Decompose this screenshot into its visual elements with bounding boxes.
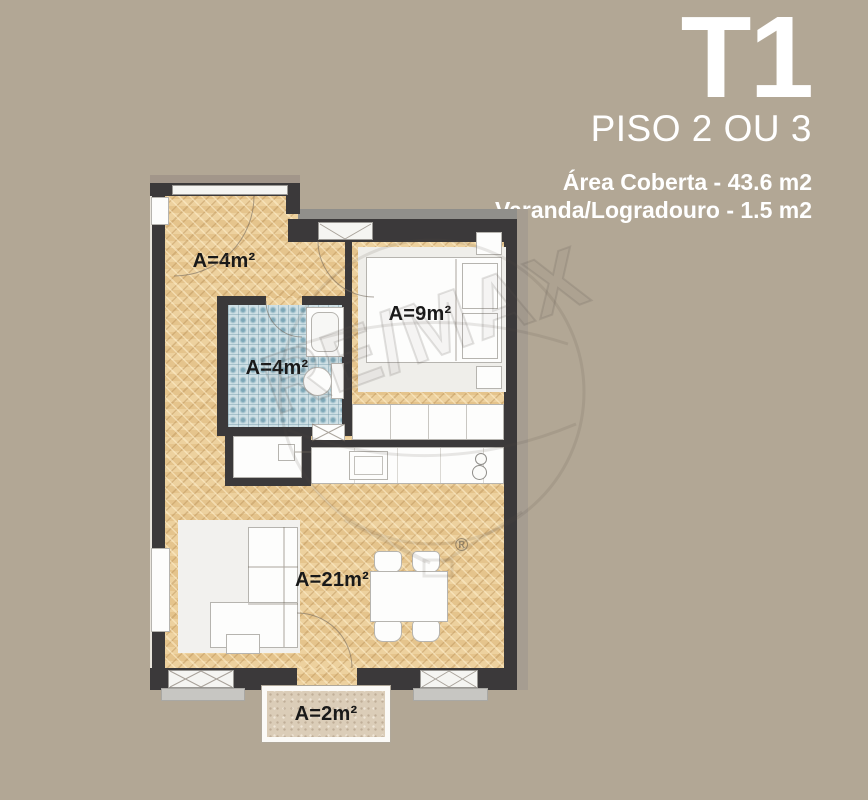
entry-door xyxy=(172,185,288,195)
window-sill-left xyxy=(161,688,245,701)
radiator xyxy=(151,197,169,225)
bathroom-door-opening xyxy=(266,296,302,305)
wardrobe xyxy=(352,404,504,440)
balcony: A=2m² xyxy=(262,686,390,742)
balcony-door-threshold xyxy=(297,668,357,688)
closet-wall-right xyxy=(302,427,311,486)
hall-area-label: A=4m² xyxy=(176,250,272,273)
technical-shaft xyxy=(312,424,345,441)
nightstand xyxy=(476,366,502,389)
entry-door-jamb xyxy=(286,196,300,214)
bedroom-area-label: A=9m² xyxy=(372,303,468,326)
balcony-area-label: A=2m² xyxy=(295,703,358,726)
kitchen-sink xyxy=(349,451,388,480)
toilet-tank xyxy=(331,363,344,399)
sofa-footrest xyxy=(226,634,260,654)
sideboard xyxy=(151,548,170,632)
living-window-right xyxy=(420,670,478,688)
dining-chair xyxy=(412,620,440,642)
nightstand xyxy=(476,232,502,255)
floor-plan: A=2m² A=4m² A=4m² A=9m² A=21m² xyxy=(0,0,868,800)
vestibule-wall xyxy=(345,242,352,296)
wall-bevel-right xyxy=(517,209,528,690)
bathroom-area-label: A=4m² xyxy=(229,357,325,380)
living-area-label: A=21m² xyxy=(284,569,380,592)
dining-table xyxy=(370,571,448,622)
sink-basin xyxy=(354,456,383,475)
bathroom-wall-left xyxy=(217,296,228,436)
bathtub-basin xyxy=(311,312,339,352)
closet-wall-bottom xyxy=(225,478,311,486)
dining-chair xyxy=(412,551,440,573)
floorplan-page: { "header": { "title": "T1", "subtitle":… xyxy=(0,0,868,800)
bedroom-living-wall xyxy=(308,440,504,447)
bathtub xyxy=(306,307,344,357)
cooktop-burner xyxy=(472,465,487,480)
bedroom-window xyxy=(318,222,373,240)
cooktop-burner xyxy=(475,453,487,465)
living-window-left xyxy=(168,670,234,688)
window-sill-right xyxy=(413,688,488,701)
dining-chair xyxy=(374,620,402,642)
water-heater xyxy=(278,444,295,461)
